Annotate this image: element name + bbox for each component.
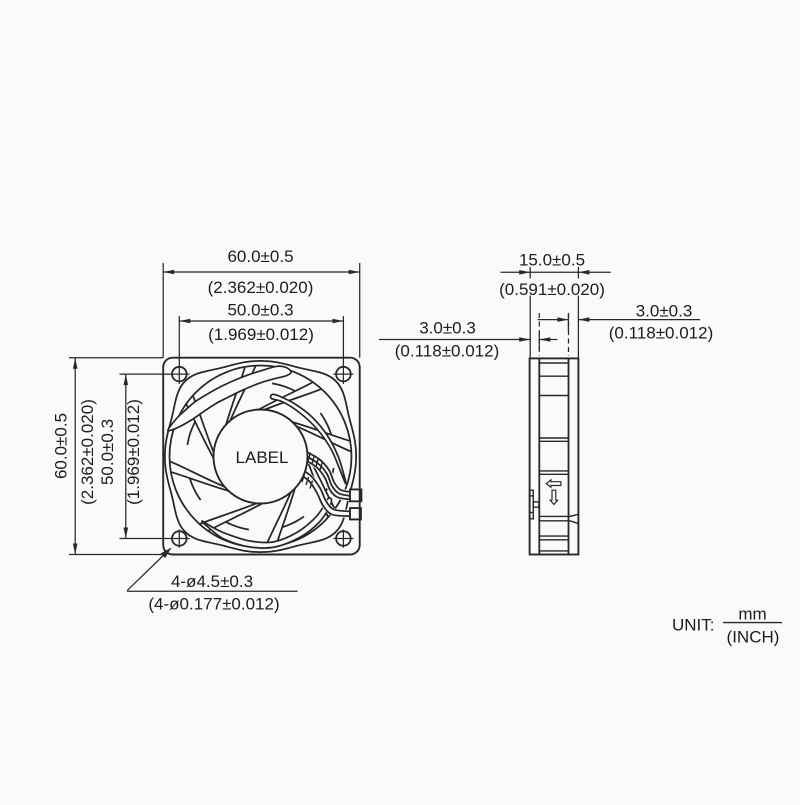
svg-text:(0.118±0.012): (0.118±0.012) [395, 342, 499, 361]
svg-text:(2.362±0.020): (2.362±0.020) [208, 278, 314, 297]
svg-text:(1.969±0.012): (1.969±0.012) [124, 399, 143, 505]
svg-text:3.0±0.3: 3.0±0.3 [419, 319, 476, 338]
svg-text:3.0±0.3: 3.0±0.3 [636, 302, 693, 321]
svg-text:4-ø4.5±0.3: 4-ø4.5±0.3 [171, 572, 253, 591]
svg-text:LABEL: LABEL [236, 448, 289, 467]
svg-text:15.0±0.5: 15.0±0.5 [519, 251, 585, 270]
svg-text:(0.591±0.020): (0.591±0.020) [499, 280, 605, 299]
svg-text:(0.118±0.012): (0.118±0.012) [609, 324, 713, 343]
svg-text:mm: mm [738, 605, 766, 624]
svg-text:UNIT:: UNIT: [672, 616, 715, 635]
svg-text:50.0±0.3: 50.0±0.3 [227, 301, 293, 320]
svg-text:60.0±0.5: 60.0±0.5 [227, 247, 293, 266]
svg-text:(4-ø0.177±0.012): (4-ø0.177±0.012) [148, 594, 279, 613]
svg-text:60.0±0.5: 60.0±0.5 [52, 413, 71, 479]
svg-text:(1.969±0.012): (1.969±0.012) [208, 325, 314, 344]
svg-text:(2.362±0.020): (2.362±0.020) [78, 399, 97, 505]
svg-text:50.0±0.3: 50.0±0.3 [98, 419, 117, 485]
svg-text:(INCH): (INCH) [727, 627, 780, 646]
